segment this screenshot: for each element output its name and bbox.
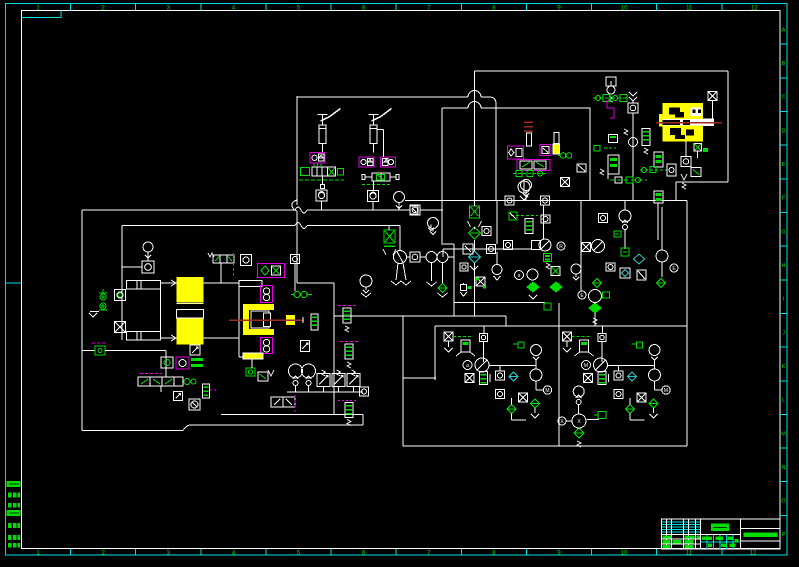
svg-text:A: A (782, 27, 786, 33)
svg-text:R: R (559, 244, 563, 250)
svg-text:a: a (518, 273, 521, 279)
svg-text:12: 12 (751, 6, 758, 12)
svg-text:H: H (782, 263, 786, 269)
svg-text:L: L (782, 398, 785, 404)
svg-text:M: M (545, 388, 549, 394)
svg-text:D: D (782, 128, 786, 134)
svg-text:K: K (782, 364, 786, 370)
svg-text:M: M (584, 363, 588, 369)
svg-text:12: 12 (750, 551, 757, 557)
svg-text:J: J (782, 330, 785, 336)
svg-text:10: 10 (621, 6, 628, 12)
svg-text:N: N (782, 465, 786, 471)
svg-text:10: 10 (621, 551, 628, 557)
svg-text:11: 11 (686, 551, 693, 557)
svg-text:G: G (781, 229, 785, 235)
svg-text:E: E (782, 162, 786, 168)
svg-text:O: O (781, 499, 786, 505)
svg-text:a: a (466, 363, 469, 369)
svg-text:11: 11 (686, 6, 693, 12)
svg-text:C: C (782, 95, 786, 101)
svg-text:M: M (781, 431, 786, 437)
svg-text:M: M (664, 388, 668, 394)
svg-text:B: B (782, 61, 786, 67)
svg-text:P: P (782, 532, 786, 538)
